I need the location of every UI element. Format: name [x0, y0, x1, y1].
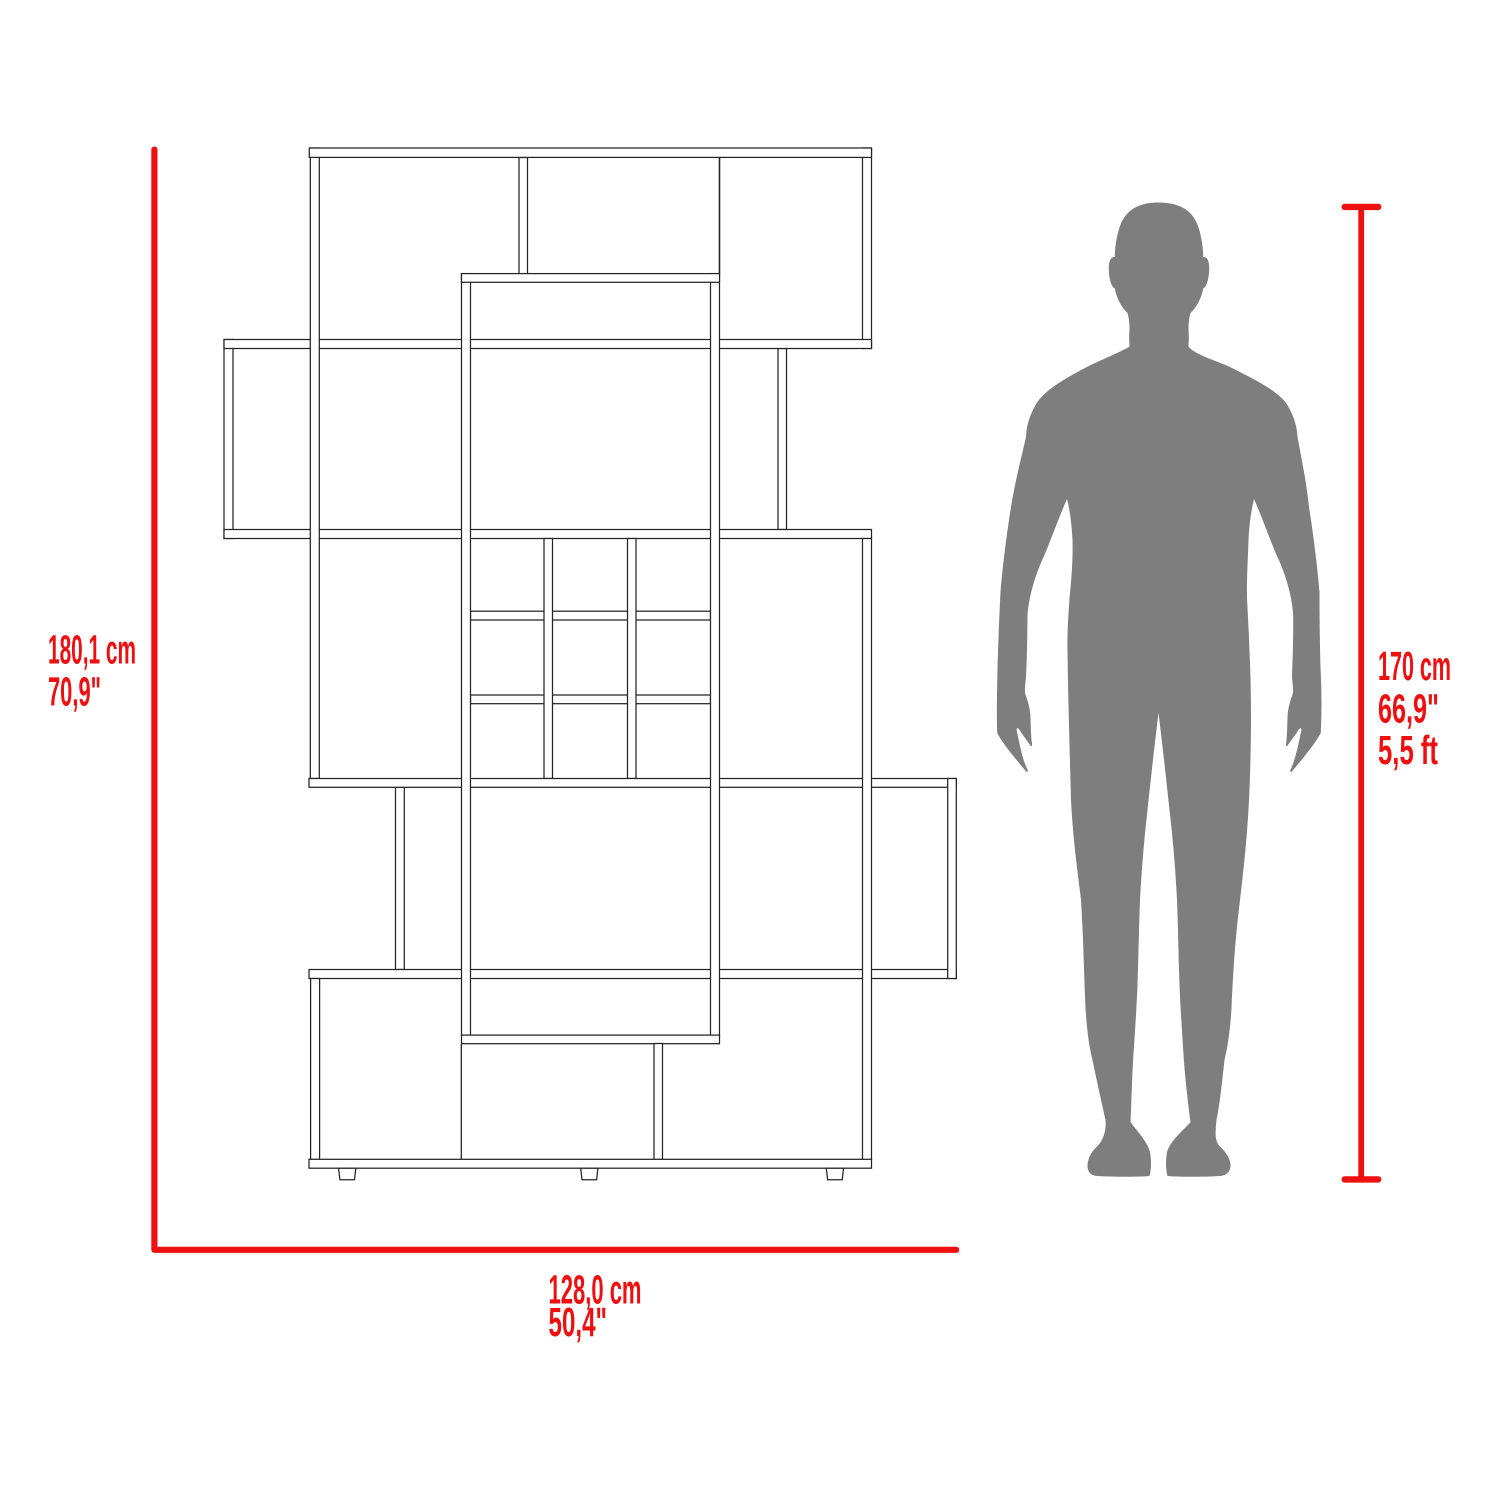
svg-text:70,9": 70,9" [48, 669, 101, 715]
svg-text:50,4": 50,4" [549, 1299, 608, 1345]
svg-text:180,1 cm: 180,1 cm [48, 627, 136, 673]
svg-text:66,9": 66,9" [1378, 686, 1439, 732]
svg-text:5,5 ft: 5,5 ft [1378, 727, 1438, 773]
svg-text:170 cm: 170 cm [1378, 643, 1451, 689]
